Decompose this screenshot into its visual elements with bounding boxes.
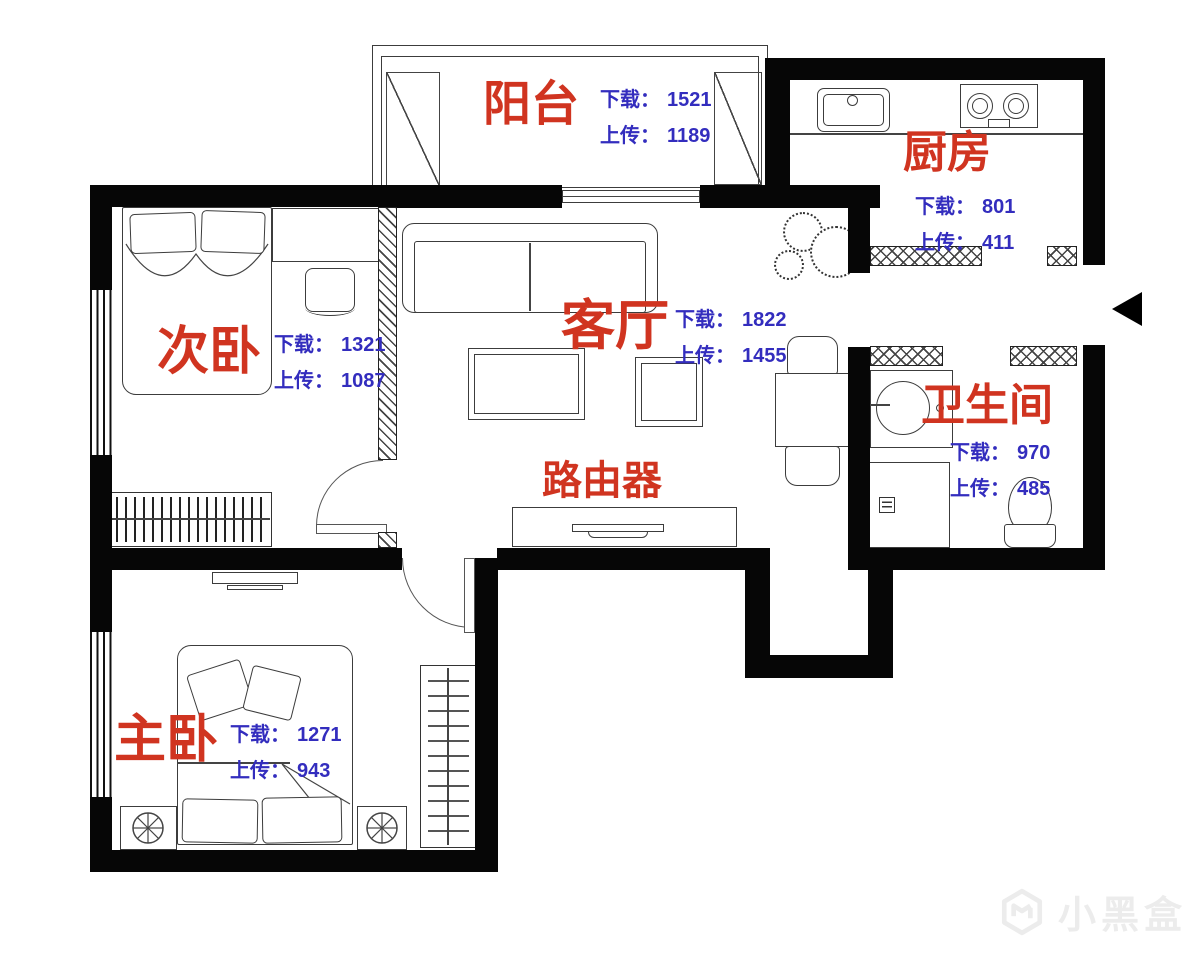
hatch-wall-corridor-bathroom-right: [1010, 346, 1077, 366]
bathroom-label: 卫生间: [921, 383, 1053, 429]
download-label: 下载：: [950, 442, 1010, 464]
stove-burner-left-inner: [972, 98, 988, 114]
download-row: 下载：1521: [600, 83, 712, 112]
sofa-seat-divider: [529, 243, 531, 311]
stove-burner-right-inner: [1008, 98, 1024, 114]
bedroom2-pillow-left: [129, 212, 196, 254]
wall-left-upper: [90, 185, 112, 290]
download-label: 下载：: [600, 89, 660, 111]
master-pillow-right: [262, 796, 343, 843]
master-pillow-left: [182, 798, 259, 843]
kitchen-label: 厨房: [903, 130, 991, 176]
download-row: 下载：970: [950, 436, 1050, 465]
master-bedroom-speed-stats: 下载：1271 上传：943: [230, 718, 342, 790]
dining-chair-bottom: [785, 446, 840, 486]
master-door-leaf: [464, 558, 475, 633]
master-wardrobe: [420, 665, 477, 848]
upload-row: 上传：1087: [274, 364, 386, 393]
wall-bedroom2-top: [90, 185, 390, 207]
dining-chair-top: [787, 336, 838, 375]
upload-label: 上传：: [274, 370, 334, 392]
upload-label: 上传：: [950, 478, 1010, 500]
kitchen-speed-stats: 下载：801 上传：411: [915, 190, 1015, 262]
window-bedroom2: [90, 290, 112, 455]
wall-corridor-left: [848, 208, 870, 273]
download-label: 下载：: [274, 334, 334, 356]
wall-shaft-right: [868, 548, 893, 678]
balcony-sliding-door: [562, 190, 700, 203]
download-row: 下载：1321: [274, 328, 386, 357]
dining-table: [775, 373, 850, 447]
fan-icon: [128, 808, 168, 848]
upload-value: 1087: [341, 370, 386, 392]
bedroom2-pillow-right: [200, 210, 265, 254]
upload-row: 上传：485: [950, 472, 1050, 501]
bookshelf-shelf-line: [108, 518, 270, 520]
wall-living-bottom: [497, 548, 747, 570]
watermark-text: 小黑盒: [1058, 884, 1187, 939]
stove-control: [988, 119, 1010, 128]
bathroom-speed-stats: 下载：970 上传：485: [950, 436, 1050, 508]
download-label: 下载：: [675, 309, 735, 331]
hatch-wall-kitchen-corridor-right: [1047, 246, 1077, 266]
hatch-wall-corridor-bathroom-left: [870, 346, 943, 366]
router-label: 路由器: [542, 460, 662, 502]
wall-right-bathroom: [1083, 345, 1105, 570]
upload-label: 上传：: [230, 760, 290, 782]
upload-value: 411: [982, 232, 1014, 254]
wall-bathroom-bottom: [893, 548, 1105, 570]
xiaoheihe-logo-icon: [998, 888, 1046, 936]
master-tv-base: [227, 585, 283, 590]
download-value: 1521: [667, 89, 712, 111]
master-tv: [212, 572, 298, 584]
bedroom2-door-arc: [316, 460, 383, 526]
wall-master-right: [475, 558, 498, 872]
wardrobe-center-line: [447, 668, 449, 845]
download-row: 下载：801: [915, 190, 1015, 219]
wall-bedroom-divider: [90, 548, 402, 570]
living-room-speed-stats: 下载：1822 上传：1455: [675, 303, 787, 375]
balcony-label: 阳台: [483, 80, 579, 130]
living-room-label: 客厅: [561, 298, 669, 355]
floor-plan: 阳台 厨房 次卧 客厅 卫生间 主卧 路由器 下载：1521 上传：1189 下…: [0, 0, 1200, 959]
master-bedroom-label: 主卧: [114, 713, 218, 768]
tv-base: [588, 531, 648, 538]
download-label: 下载：: [915, 196, 975, 218]
master-door-arc: [402, 558, 472, 628]
upload-row: 上传：943: [230, 754, 342, 783]
wall-bathroom-left: [848, 347, 870, 570]
coffee-table-inner: [474, 354, 579, 414]
window-master-bedroom: [90, 632, 112, 797]
upload-value: 943: [297, 760, 330, 782]
hatch-wall-bedroom2-lower: [378, 532, 397, 548]
download-value: 801: [982, 196, 1015, 218]
download-value: 970: [1017, 442, 1050, 464]
download-label: 下载：: [230, 724, 290, 746]
watermark: 小黑盒: [998, 884, 1187, 939]
upload-row: 上传：1455: [675, 339, 787, 368]
upload-row: 上传：411: [915, 226, 1015, 255]
upload-value: 1189: [667, 125, 710, 147]
download-value: 1271: [297, 724, 342, 746]
upload-value: 1455: [742, 345, 787, 367]
bedroom2-chair-back: [305, 300, 355, 316]
upload-label: 上传：: [915, 232, 975, 254]
wall-balcony-kitchen-divider: [765, 58, 790, 208]
kitchen-faucet: [847, 95, 858, 106]
entry-arrow-icon: [1112, 292, 1142, 326]
download-value: 1822: [742, 309, 787, 331]
bedroom2-cabinet: [272, 208, 382, 262]
plant-icon: [774, 250, 804, 280]
toilet-tank: [1004, 524, 1056, 548]
wall-living-top-right: [700, 185, 880, 208]
shower-drain: [879, 497, 895, 513]
upload-label: 上传：: [600, 125, 660, 147]
second-bedroom-speed-stats: 下载：1321 上传：1087: [274, 328, 386, 400]
wall-left-middle: [90, 455, 112, 632]
upload-value: 485: [1017, 478, 1050, 500]
bedroom2-door-leaf: [316, 524, 387, 534]
balcony-speed-stats: 下载：1521 上传：1189: [600, 83, 712, 155]
wall-living-top-left: [390, 185, 562, 208]
upload-label: 上传：: [675, 345, 735, 367]
download-value: 1321: [341, 334, 386, 356]
balcony-window-left: [386, 72, 440, 186]
fan-icon: [362, 808, 402, 848]
balcony-window-right: [714, 72, 762, 185]
download-row: 下载：1271: [230, 718, 342, 747]
wall-master-bottom: [90, 850, 498, 872]
second-bedroom-label: 次卧: [157, 325, 261, 380]
download-row: 下载：1822: [675, 303, 787, 332]
wall-kitchen-top: [765, 58, 1105, 80]
upload-row: 上传：1189: [600, 119, 712, 148]
wall-right-kitchen: [1083, 58, 1105, 265]
